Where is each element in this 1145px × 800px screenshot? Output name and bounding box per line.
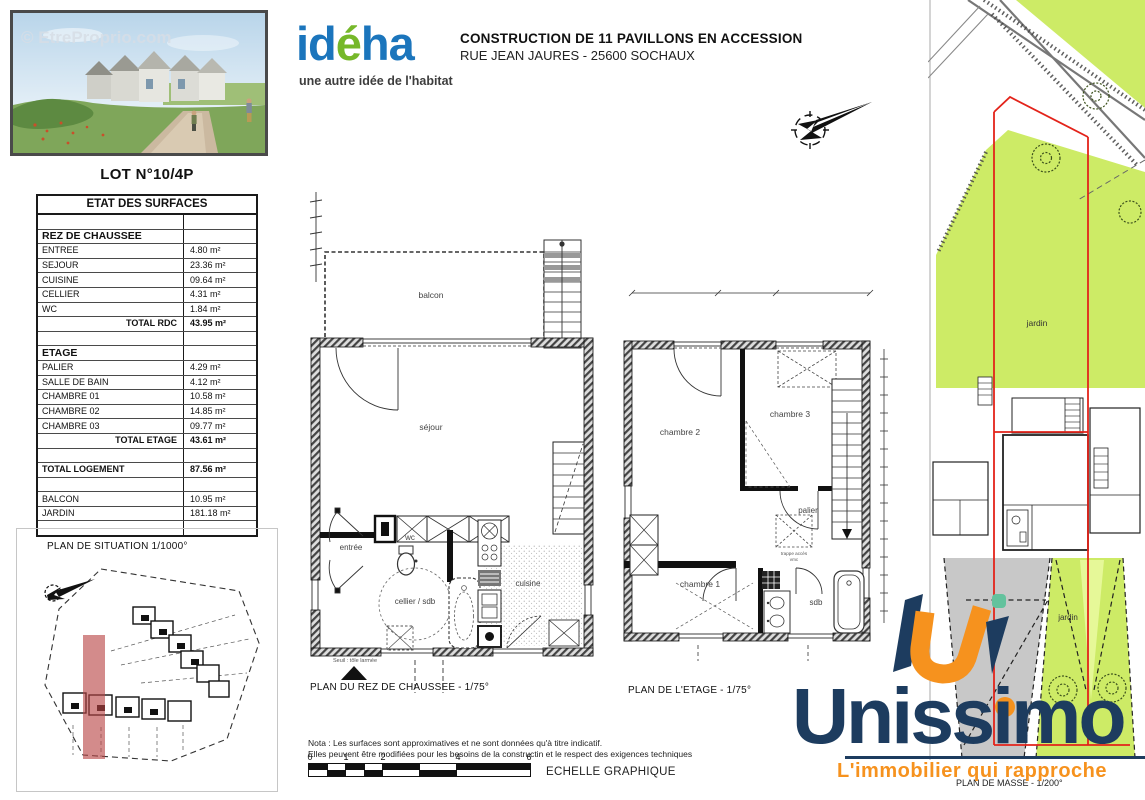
room-label-cuisine: cuisine	[516, 579, 541, 588]
surface-row-value: 10.58 m²	[183, 390, 256, 404]
scale-tick: 0	[307, 752, 312, 762]
surface-table-row	[38, 215, 256, 229]
surface-row-label: ETAGE	[38, 348, 183, 359]
situation-plan-box: PLAN DE SITUATION 1/1000°	[16, 528, 278, 792]
surface-table-row	[38, 331, 256, 346]
surface-table-row: ENTREE 4.80 m²	[38, 243, 256, 258]
surface-row-value: 14.85 m²	[183, 405, 256, 419]
surface-table-row: SEJOUR 23.36 m²	[38, 258, 256, 273]
surface-table: ETAT DES SURFACES REZ DE CHAUSSEE ENTREE…	[36, 194, 258, 537]
surface-table-row: TOTAL RDC 43.95 m²	[38, 316, 256, 331]
surface-table-row: WC 1.84 m²	[38, 302, 256, 317]
photo-watermark: © EtreProprio.com	[21, 28, 171, 47]
room-label-sdb: sdb	[810, 598, 823, 607]
surface-table-row: CHAMBRE 03 09.77 m²	[38, 418, 256, 433]
plan-sheet-page: © EtreProprio.com LOT N°10/4P ETAT DES S…	[0, 0, 1145, 800]
surface-row-value: 1.84 m²	[183, 303, 256, 317]
north-arrow-icon	[780, 94, 880, 156]
seuil-note: Seuil : tôle larmée	[333, 658, 377, 664]
surface-row-label: TOTAL LOGEMENT	[38, 465, 183, 474]
surface-table-row: JARDIN 181.18 m²	[38, 506, 256, 521]
rdc-floor-plan: balcon	[303, 190, 598, 695]
trappe-label-1: trappe accès	[781, 551, 808, 556]
room-label-chambre1: chambre 1	[680, 579, 720, 589]
surface-row-value	[183, 230, 256, 244]
surface-row-label: REZ DE CHAUSSEE	[38, 231, 183, 242]
surface-row-value: 4.29 m²	[183, 361, 256, 375]
trappe-label-2: vmc	[790, 557, 799, 562]
room-label-chambre3: chambre 3	[770, 409, 810, 419]
surface-row-value: 4.80 m²	[183, 244, 256, 258]
room-label-wc: wc	[404, 533, 415, 542]
washer-bathtub	[387, 578, 480, 650]
surface-row-value: 4.31 m²	[183, 288, 256, 302]
surface-table-row: CHAMBRE 01 10.58 m²	[38, 389, 256, 404]
scale-ticks: 01246	[308, 752, 531, 762]
surface-table-row: ETAGE	[38, 345, 256, 360]
room-label-balcon: balcon	[418, 290, 443, 300]
surface-row-label: CHAMBRE 03	[38, 422, 183, 431]
surface-table-row	[38, 477, 256, 492]
surface-row-value	[183, 346, 256, 360]
surface-row-value: 23.36 m²	[183, 259, 256, 273]
scale-tick: 2	[380, 752, 385, 762]
exterior-stairs	[544, 240, 581, 348]
surface-table-row: TOTAL LOGEMENT 87.56 m²	[38, 462, 256, 477]
room-label-entree: entrée	[340, 543, 363, 552]
surface-row-value: 09.77 m²	[183, 419, 256, 433]
etage-floor-plan: trappe accès vmc	[618, 283, 908, 663]
project-render-photo: © EtreProprio.com	[10, 10, 268, 156]
surface-row-label: JARDIN	[38, 509, 183, 518]
ideha-logo: idéha	[296, 20, 414, 67]
unissimo-wordmark: Unissimo	[792, 676, 1124, 755]
surface-table-row	[38, 448, 256, 463]
surface-row-label: CHAMBRE 01	[38, 392, 183, 401]
situation-caption: PLAN DE SITUATION 1/1000°	[47, 541, 188, 552]
surface-row-value: 10.95 m²	[183, 492, 256, 506]
scale-tick: 6	[526, 752, 531, 762]
surface-row-value: 181.18 m²	[183, 507, 256, 521]
surface-table-row: BALCON 10.95 m²	[38, 491, 256, 506]
surface-row-label: TOTAL RDC	[38, 319, 183, 328]
surface-table-row: CUISINE 09.64 m²	[38, 272, 256, 287]
north-arrow-icon	[45, 579, 95, 601]
surface-row-label: PALIER	[38, 363, 183, 372]
entry-arrow	[341, 666, 367, 680]
surface-row-value	[183, 449, 256, 463]
unissimo-tagline: L'immobilier qui rapproche	[837, 760, 1107, 783]
jardin-label-bottom: jardin	[1057, 613, 1078, 622]
surface-row-value: 87.56 m²	[183, 463, 256, 477]
scale-label: ECHELLE GRAPHIQUE	[546, 766, 676, 778]
room-label-sejour: séjour	[419, 422, 442, 432]
lot-title: LOT N°10/4P	[36, 166, 258, 183]
trappe-vmc	[776, 515, 812, 547]
dimension-ladder	[880, 349, 888, 623]
surface-row-label: CHAMBRE 02	[38, 407, 183, 416]
surface-row-value: 43.95 m²	[183, 317, 256, 331]
surface-table-row: SALLE DE BAIN 4.12 m²	[38, 375, 256, 390]
surface-row-label: CELLIER	[38, 290, 183, 299]
surface-row-label: ENTREE	[38, 246, 183, 255]
surface-row-label: SEJOUR	[38, 261, 183, 270]
rdc-caption: PLAN DU REZ DE CHAUSSEE - 1/75°	[310, 682, 489, 693]
graphic-scale: 01246 ECHELLE GRAPHIQUE	[308, 752, 728, 792]
situation-plan-drawing	[21, 555, 273, 787]
document-title: CONSTRUCTION DE 11 PAVILLONS EN ACCESSIO…	[460, 31, 803, 46]
etage-caption: PLAN DE L'ETAGE - 1/75°	[628, 685, 751, 696]
surface-row-label: SALLE DE BAIN	[38, 378, 183, 387]
nota-line1: Nota : Les surfaces sont approximatives …	[308, 738, 692, 749]
ideha-tagline: une autre idée de l'habitat	[299, 74, 453, 88]
surface-table-body: REZ DE CHAUSSEE ENTREE 4.80 m² SEJOUR 23…	[38, 215, 256, 535]
room-label-cellier-sdb: cellier / sdb	[395, 597, 436, 606]
scale-tick: 1	[343, 752, 348, 762]
surface-row-label: WC	[38, 305, 183, 314]
render-illustration: © EtreProprio.com	[13, 13, 265, 153]
document-subtitle: RUE JEAN JAURES - 25600 SOCHAUX	[460, 48, 695, 63]
toilet	[398, 546, 418, 575]
room-label-chambre2: chambre 2	[660, 427, 700, 437]
surface-table-row: PALIER 4.29 m²	[38, 360, 256, 375]
interior-stairs	[553, 442, 584, 534]
surface-row-value: 43.61 m²	[183, 434, 256, 448]
surface-row-value	[183, 478, 256, 492]
surface-row-label: CUISINE	[38, 276, 183, 285]
surface-row-value	[183, 332, 256, 346]
wardrobes	[630, 515, 658, 575]
scale-tick: 4	[455, 752, 460, 762]
surface-table-row: TOTAL ETAGE 43.61 m²	[38, 433, 256, 448]
surface-row-value	[183, 215, 256, 229]
surface-table-row: CHAMBRE 02 14.85 m²	[38, 404, 256, 419]
surface-table-row: REZ DE CHAUSSEE	[38, 229, 256, 244]
scale-bar-blocks	[308, 763, 531, 777]
jardin-label-top: jardin	[1026, 318, 1048, 328]
room-label-palier: palier	[798, 506, 818, 515]
surface-table-row: CELLIER 4.31 m²	[38, 287, 256, 302]
surface-row-value: 4.12 m²	[183, 376, 256, 390]
surface-table-title: ETAT DES SURFACES	[38, 196, 256, 215]
highlighted-lot-strip	[83, 635, 105, 759]
stairs	[832, 379, 862, 539]
surface-row-label: BALCON	[38, 495, 183, 504]
surface-row-label: TOTAL ETAGE	[38, 436, 183, 445]
surface-row-value: 09.64 m²	[183, 273, 256, 287]
unissimo-rule	[845, 756, 1145, 759]
